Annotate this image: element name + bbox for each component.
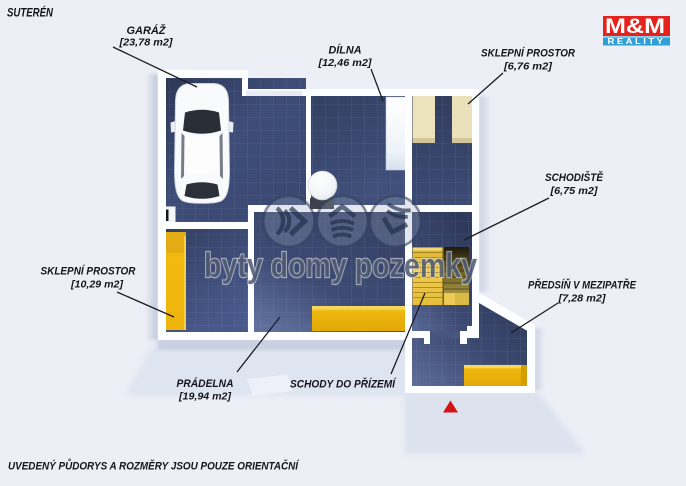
svg-text:DÍLNA: DÍLNA (329, 44, 362, 57)
svg-text:PŘEDSÍŇ V MEZIPATŘE: PŘEDSÍŇ V MEZIPATŘE (528, 279, 637, 292)
svg-text:M&M: M&M (605, 15, 665, 38)
svg-text:byty domy pozemky: byty domy pozemky (204, 247, 477, 285)
svg-text:[6,75 m2]: [6,75 m2] (549, 185, 598, 197)
svg-text:SCHODY DO PŘÍZEMÍ: SCHODY DO PŘÍZEMÍ (290, 378, 397, 391)
svg-text:[10,29 m2]: [10,29 m2] (70, 279, 124, 291)
svg-text:UVEDENÝ PŮDORYS A ROZMĚRY JSOU: UVEDENÝ PŮDORYS A ROZMĚRY JSOU POUZE ORI… (8, 459, 300, 473)
svg-text:SKLEPNÍ PROSTOR: SKLEPNÍ PROSTOR (41, 265, 136, 278)
svg-text:[12,46 m2]: [12,46 m2] (317, 57, 372, 69)
svg-text:PRÁDELNA: PRÁDELNA (177, 377, 234, 390)
svg-text:[6,76 m2]: [6,76 m2] (503, 61, 553, 73)
svg-text:REALITY: REALITY (608, 36, 666, 46)
svg-text:SUTERÉN: SUTERÉN (7, 7, 54, 20)
svg-text:SKLEPNÍ PROSTOR: SKLEPNÍ PROSTOR (481, 47, 575, 60)
svg-text:SCHODIŠTĚ: SCHODIŠTĚ (545, 171, 604, 184)
svg-text:[7,28 m2]: [7,28 m2] (557, 293, 606, 305)
svg-text:[19,94 m2]: [19,94 m2] (178, 391, 232, 403)
svg-text:GARÁŽ: GARÁŽ (127, 24, 167, 37)
svg-text:[23,78 m2]: [23,78 m2] (118, 37, 173, 49)
